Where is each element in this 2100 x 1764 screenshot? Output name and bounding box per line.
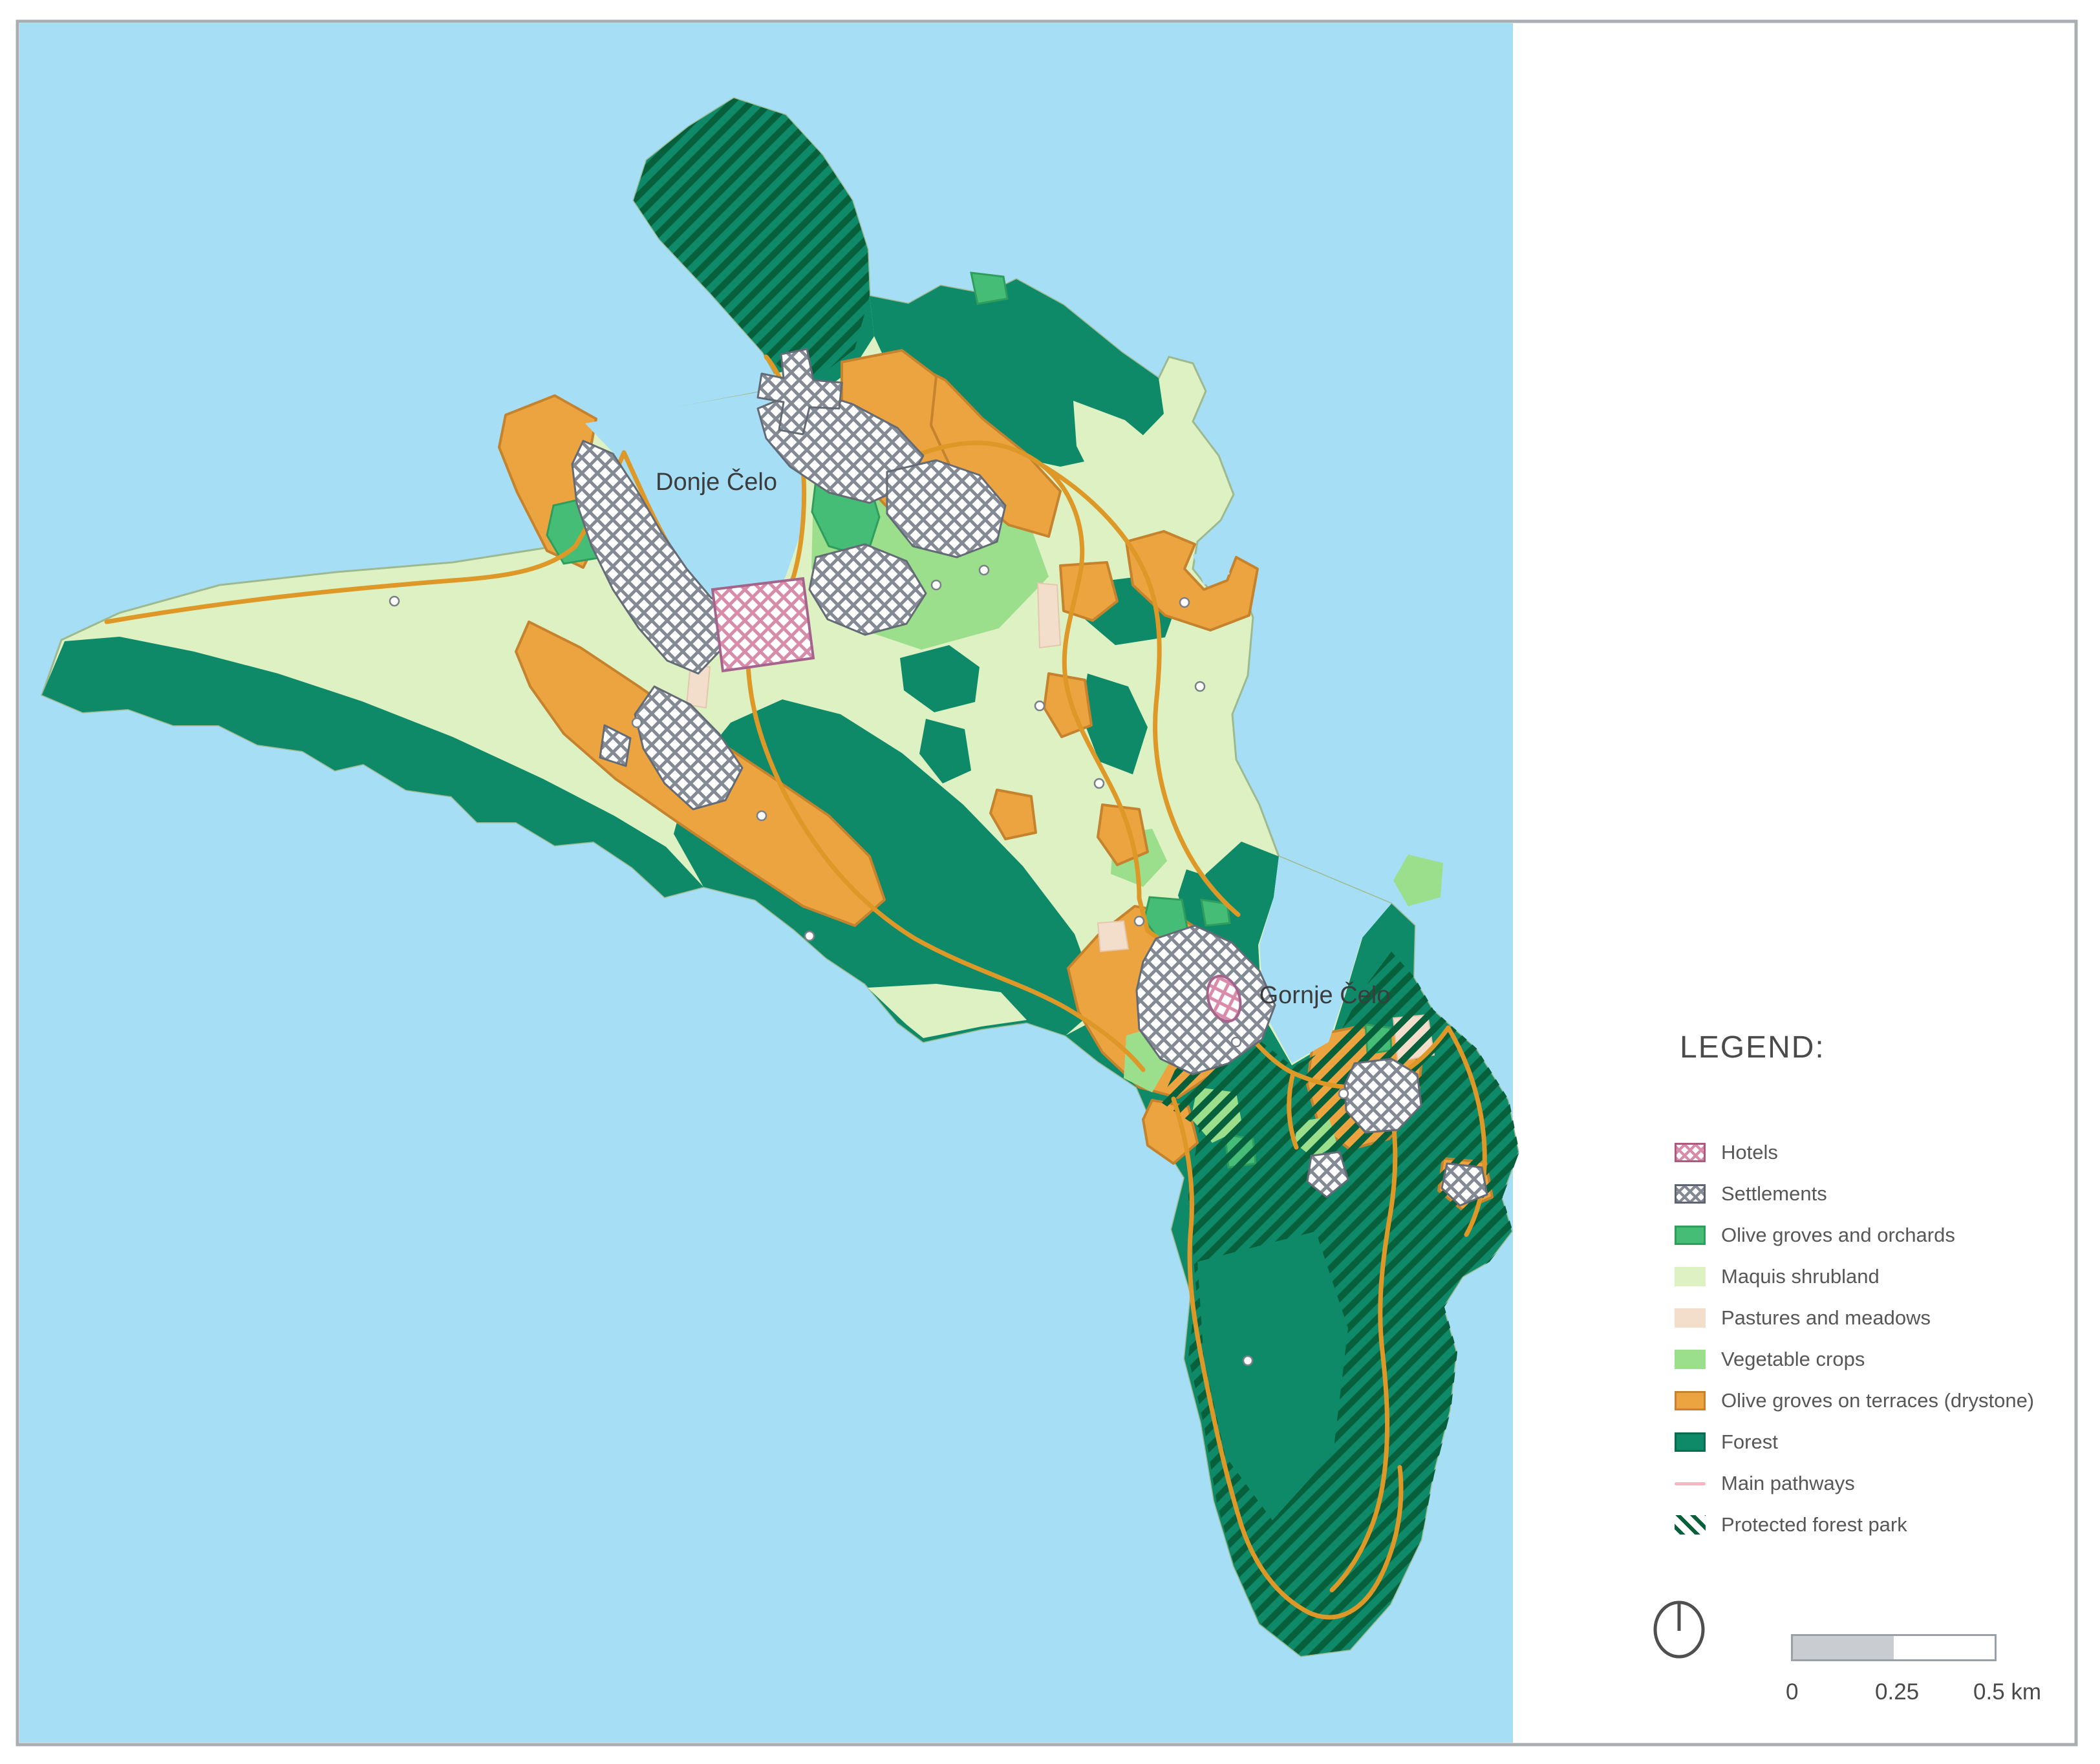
building-dot <box>1195 682 1205 691</box>
legend-item-label: Maquis shrubland <box>1721 1265 1880 1288</box>
legend-item-label: Vegetable crops <box>1721 1348 1865 1371</box>
pasture-region <box>1098 921 1128 951</box>
map-label-gornje-celo: Gornje Čelo <box>1259 981 1391 1009</box>
building-dot <box>1243 1356 1252 1365</box>
legend-item-label: Main pathways <box>1721 1472 1855 1495</box>
settlements-swatch-icon <box>1675 1184 1706 1204</box>
building-dot <box>390 597 399 606</box>
legend-item-label: Protected forest park <box>1721 1513 1907 1536</box>
legend-row-pathways: Main pathways <box>1675 1463 2034 1504</box>
maquis-swatch-icon <box>1675 1267 1706 1286</box>
building-dot <box>1135 917 1144 926</box>
legend-row-hotels: Hotels <box>1675 1132 2034 1173</box>
legend-item-label: Olive groves on terraces (drystone) <box>1721 1389 2034 1412</box>
building-dot <box>1035 701 1044 710</box>
pasture-region <box>1038 583 1060 648</box>
legend-row-olive-orchards: Olive groves and orchards <box>1675 1215 2034 1256</box>
scale-label-0: 0 <box>1786 1679 1798 1705</box>
legend-item-label: Olive groves and orchards <box>1721 1224 1955 1247</box>
forest-swatch-icon <box>1675 1432 1706 1452</box>
scale-bar: 0 0.25 0.5 km <box>1791 1634 2004 1705</box>
legend-item-label: Hotels <box>1721 1141 1778 1164</box>
hotel-area <box>712 579 813 671</box>
legend-row-protected-park: Protected forest park <box>1675 1504 2034 1546</box>
legend-item-label: Settlements <box>1721 1182 1827 1206</box>
orchards-swatch-icon <box>1675 1226 1706 1245</box>
building-dot <box>1180 598 1189 607</box>
building-dot <box>805 931 814 940</box>
legend-row-settlements: Settlements <box>1675 1173 2034 1215</box>
scale-bar-labels: 0 0.25 0.5 km <box>1791 1679 2004 1705</box>
legend-item-label: Pastures and meadows <box>1721 1306 1931 1330</box>
north-indicator-icon <box>1652 1592 1710 1663</box>
legend-row-forest: Forest <box>1675 1421 2034 1463</box>
orchard-region <box>971 273 1007 304</box>
hotels-swatch-icon <box>1675 1143 1706 1162</box>
legend-list: Hotels Settlements Olive groves and orch… <box>1675 1132 2034 1546</box>
scale-label-half: 0.5 km <box>1973 1679 2041 1705</box>
north-indicator <box>1652 1592 1710 1666</box>
building-dot <box>980 566 989 575</box>
legend-row-terraces: Olive groves on terraces (drystone) <box>1675 1380 2034 1421</box>
pathways-swatch-icon <box>1675 1474 1706 1493</box>
building-dot <box>1339 1089 1348 1098</box>
building-dot <box>757 811 766 820</box>
pastures-swatch-icon <box>1675 1308 1706 1328</box>
building-dot <box>632 718 641 727</box>
building-dot <box>932 580 941 590</box>
legend-row-pastures: Pastures and meadows <box>1675 1297 2034 1339</box>
building-dot <box>1095 779 1104 788</box>
legend-item-label: Forest <box>1721 1430 1778 1454</box>
scale-label-quarter: 0.25 <box>1875 1679 1919 1705</box>
legend-panel: LEGEND: Hotels Settlements Olive groves … <box>1513 21 2077 1744</box>
legend-row-maquis: Maquis shrubland <box>1675 1256 2034 1297</box>
building-dot <box>1232 1037 1241 1047</box>
legend-row-vegetable: Vegetable crops <box>1675 1339 2034 1380</box>
legend-title: LEGEND: <box>1680 1030 1825 1065</box>
vegetable-swatch-icon <box>1675 1350 1706 1369</box>
map-label-donje-celo: Donje Čelo <box>656 467 777 496</box>
protected-park-swatch-icon <box>1675 1515 1706 1535</box>
scale-bar-track <box>1791 1634 1997 1661</box>
scale-bar-filled-half <box>1793 1636 1894 1659</box>
terraces-swatch-icon <box>1675 1391 1706 1410</box>
page: Donje Čelo Gornje Čelo LEGEND: Hotels Se… <box>0 0 2100 1764</box>
